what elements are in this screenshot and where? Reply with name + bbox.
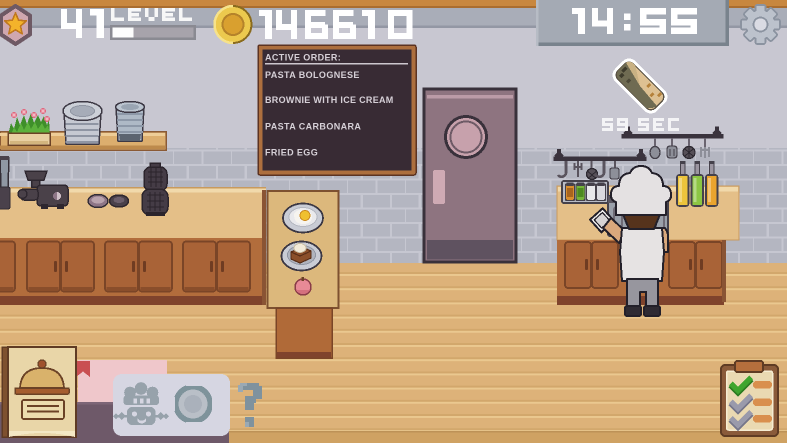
svg-text:PASTA BOLOGNESE: PASTA BOLOGNESE <box>265 70 360 80</box>
svg-text:BROWNIE WITH ICE CREAM: BROWNIE WITH ICE CREAM <box>265 95 394 105</box>
svg-text:PASTA CARBONARA: PASTA CARBONARA <box>265 122 361 132</box>
svg-text:FRIED EGG: FRIED EGG <box>265 148 318 158</box>
svg-text:ACTIVE ORDER:: ACTIVE ORDER: <box>265 53 341 63</box>
